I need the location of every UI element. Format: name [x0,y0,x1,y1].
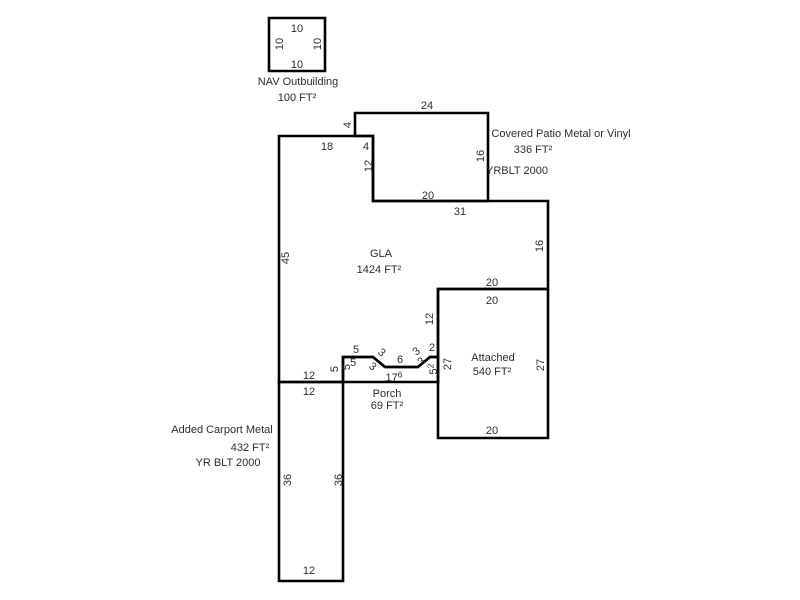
structure-label: Porch [373,388,402,400]
dimension-label: 10 [291,59,303,71]
dimension-label: 12 [424,313,436,325]
structure-label: 336 FT² [514,144,553,156]
dimension-label: 20 [486,277,498,289]
structure-label: Added Carport Metal [171,424,273,436]
dimension-label: 12 [303,386,315,398]
dimension-label: 12 [303,370,315,382]
dimension-label: 36 [282,474,294,486]
dimension-label: 45 [280,252,292,264]
structure-label: Attached [471,352,514,364]
structure-label: 100 FT² [278,92,317,104]
dimension-label: 4 [363,141,369,153]
structure-label: NAV Outbuilding [258,76,339,88]
dimension-label: 5 [353,344,359,356]
structure-label: 69 FT² [371,400,404,412]
dimension-label: 20 [486,295,498,307]
structure-label: 540 FT² [473,366,512,378]
dimension-label: 12 [363,160,375,172]
structure-label: GLA [370,248,393,260]
dimension-label: 27 [535,359,547,371]
structure-label: YRBLT 2000 [486,165,548,177]
sketch-page: 1010101024416184122031164520125555336332… [0,0,800,600]
dimension-label: 4 [342,122,354,128]
structure-label: 1424 FT² [357,264,402,276]
dimension-label: 10 [312,38,324,50]
dimension-label: 18 [321,141,333,153]
dimension-label: 2 [429,342,435,354]
dimension-label: 6 [397,354,403,366]
dimension-label: 31 [454,206,466,218]
dimension-label: 10 [291,23,303,35]
sketch-canvas: 1010101024416184122031164520125555336332… [0,0,800,600]
dimension-label: 5 [329,366,341,372]
dimension-label: 16 [475,150,487,162]
dimension-label: 5 [341,364,353,370]
dimension-label: 3 [375,346,387,359]
structure-label: Covered Patio Metal or Vinyl [491,128,630,140]
dimension-label: 20 [486,425,498,437]
dimension-label: 12 [303,565,315,577]
dimension-label: 24 [421,100,433,112]
dimension-label: 27 [442,358,454,370]
dimension-label: 20 [422,190,434,202]
dimension-label: 16 [534,240,546,252]
structure-label: 432 FT² [231,442,270,454]
structure-label: YR BLT 2000 [195,457,260,469]
dimension-label: 3 [366,360,378,373]
dimension-label: 36 [333,474,345,486]
covered-patio-outline [355,113,488,201]
dimension-label: 10 [274,38,286,50]
